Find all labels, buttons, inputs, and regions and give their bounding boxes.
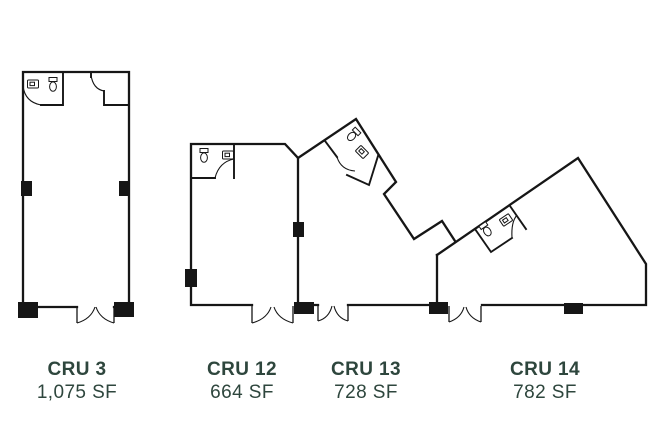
column bbox=[114, 302, 134, 317]
column bbox=[294, 302, 314, 314]
unit-label-cru-13: CRU 13 728 SF bbox=[331, 358, 401, 404]
cru3-washroom-door-swing-arc bbox=[23, 86, 41, 105]
cru13-washroom-door-swing-arc bbox=[337, 157, 355, 171]
unit-area: 1,075 SF bbox=[37, 381, 117, 404]
floor-plan-page: CRU 3 1,075 SF CRU 12 664 SF CRU 13 728 … bbox=[0, 0, 669, 435]
column bbox=[429, 302, 448, 314]
column bbox=[185, 269, 197, 287]
cru14-washroom-door-swing-arc bbox=[512, 215, 517, 238]
column bbox=[564, 303, 583, 314]
cru12-washroom-door-swing-arc bbox=[215, 159, 234, 178]
door-swing-arc bbox=[77, 307, 114, 323]
unit-area: 664 SF bbox=[207, 381, 277, 404]
unit-name: CRU 13 bbox=[331, 358, 401, 381]
unit-name: CRU 3 bbox=[37, 358, 117, 381]
toilet-icon bbox=[345, 127, 360, 142]
column bbox=[293, 222, 304, 237]
sink-icon bbox=[355, 145, 368, 158]
unit-label-cru-3: CRU 3 1,075 SF bbox=[37, 358, 117, 404]
toilet-icon bbox=[200, 149, 208, 163]
unit-label-cru-14: CRU 14 782 SF bbox=[510, 358, 580, 404]
column bbox=[21, 181, 32, 196]
cru13-exterior-walls bbox=[298, 119, 455, 305]
cru12-exterior-walls bbox=[191, 144, 298, 305]
door-swing-arc bbox=[449, 307, 481, 322]
sink-icon bbox=[28, 80, 39, 88]
unit-name: CRU 14 bbox=[510, 358, 580, 381]
unit-plan-cru-13 bbox=[293, 119, 455, 321]
sink-icon bbox=[223, 151, 234, 159]
cru3-exterior-walls bbox=[23, 72, 129, 307]
unit-name: CRU 12 bbox=[207, 358, 277, 381]
cru14-exterior-walls bbox=[437, 158, 646, 305]
unit-area: 782 SF bbox=[510, 381, 580, 404]
door-swing-arc bbox=[318, 306, 348, 321]
cru3-entrance-double-door bbox=[77, 306, 114, 323]
cru13-entrance-double-door bbox=[318, 305, 348, 321]
unit-plan-cru-3 bbox=[18, 72, 134, 323]
cru13-washroom-walls bbox=[325, 141, 378, 185]
column bbox=[18, 302, 38, 318]
toilet-icon bbox=[49, 78, 57, 92]
cru3-storage-room-walls bbox=[91, 73, 129, 105]
unit-plan-cru-14 bbox=[429, 158, 646, 322]
sink-icon bbox=[499, 214, 513, 227]
door-swing-arc bbox=[252, 307, 293, 323]
cru3-storage-door-swing-arc bbox=[91, 75, 104, 91]
cru12-entrance-double-door bbox=[252, 306, 293, 323]
unit-plan-cru-12 bbox=[185, 144, 298, 323]
unit-area: 728 SF bbox=[331, 381, 401, 404]
column bbox=[119, 181, 130, 196]
cru14-entrance-double-door bbox=[449, 306, 481, 322]
unit-label-cru-12: CRU 12 664 SF bbox=[207, 358, 277, 404]
